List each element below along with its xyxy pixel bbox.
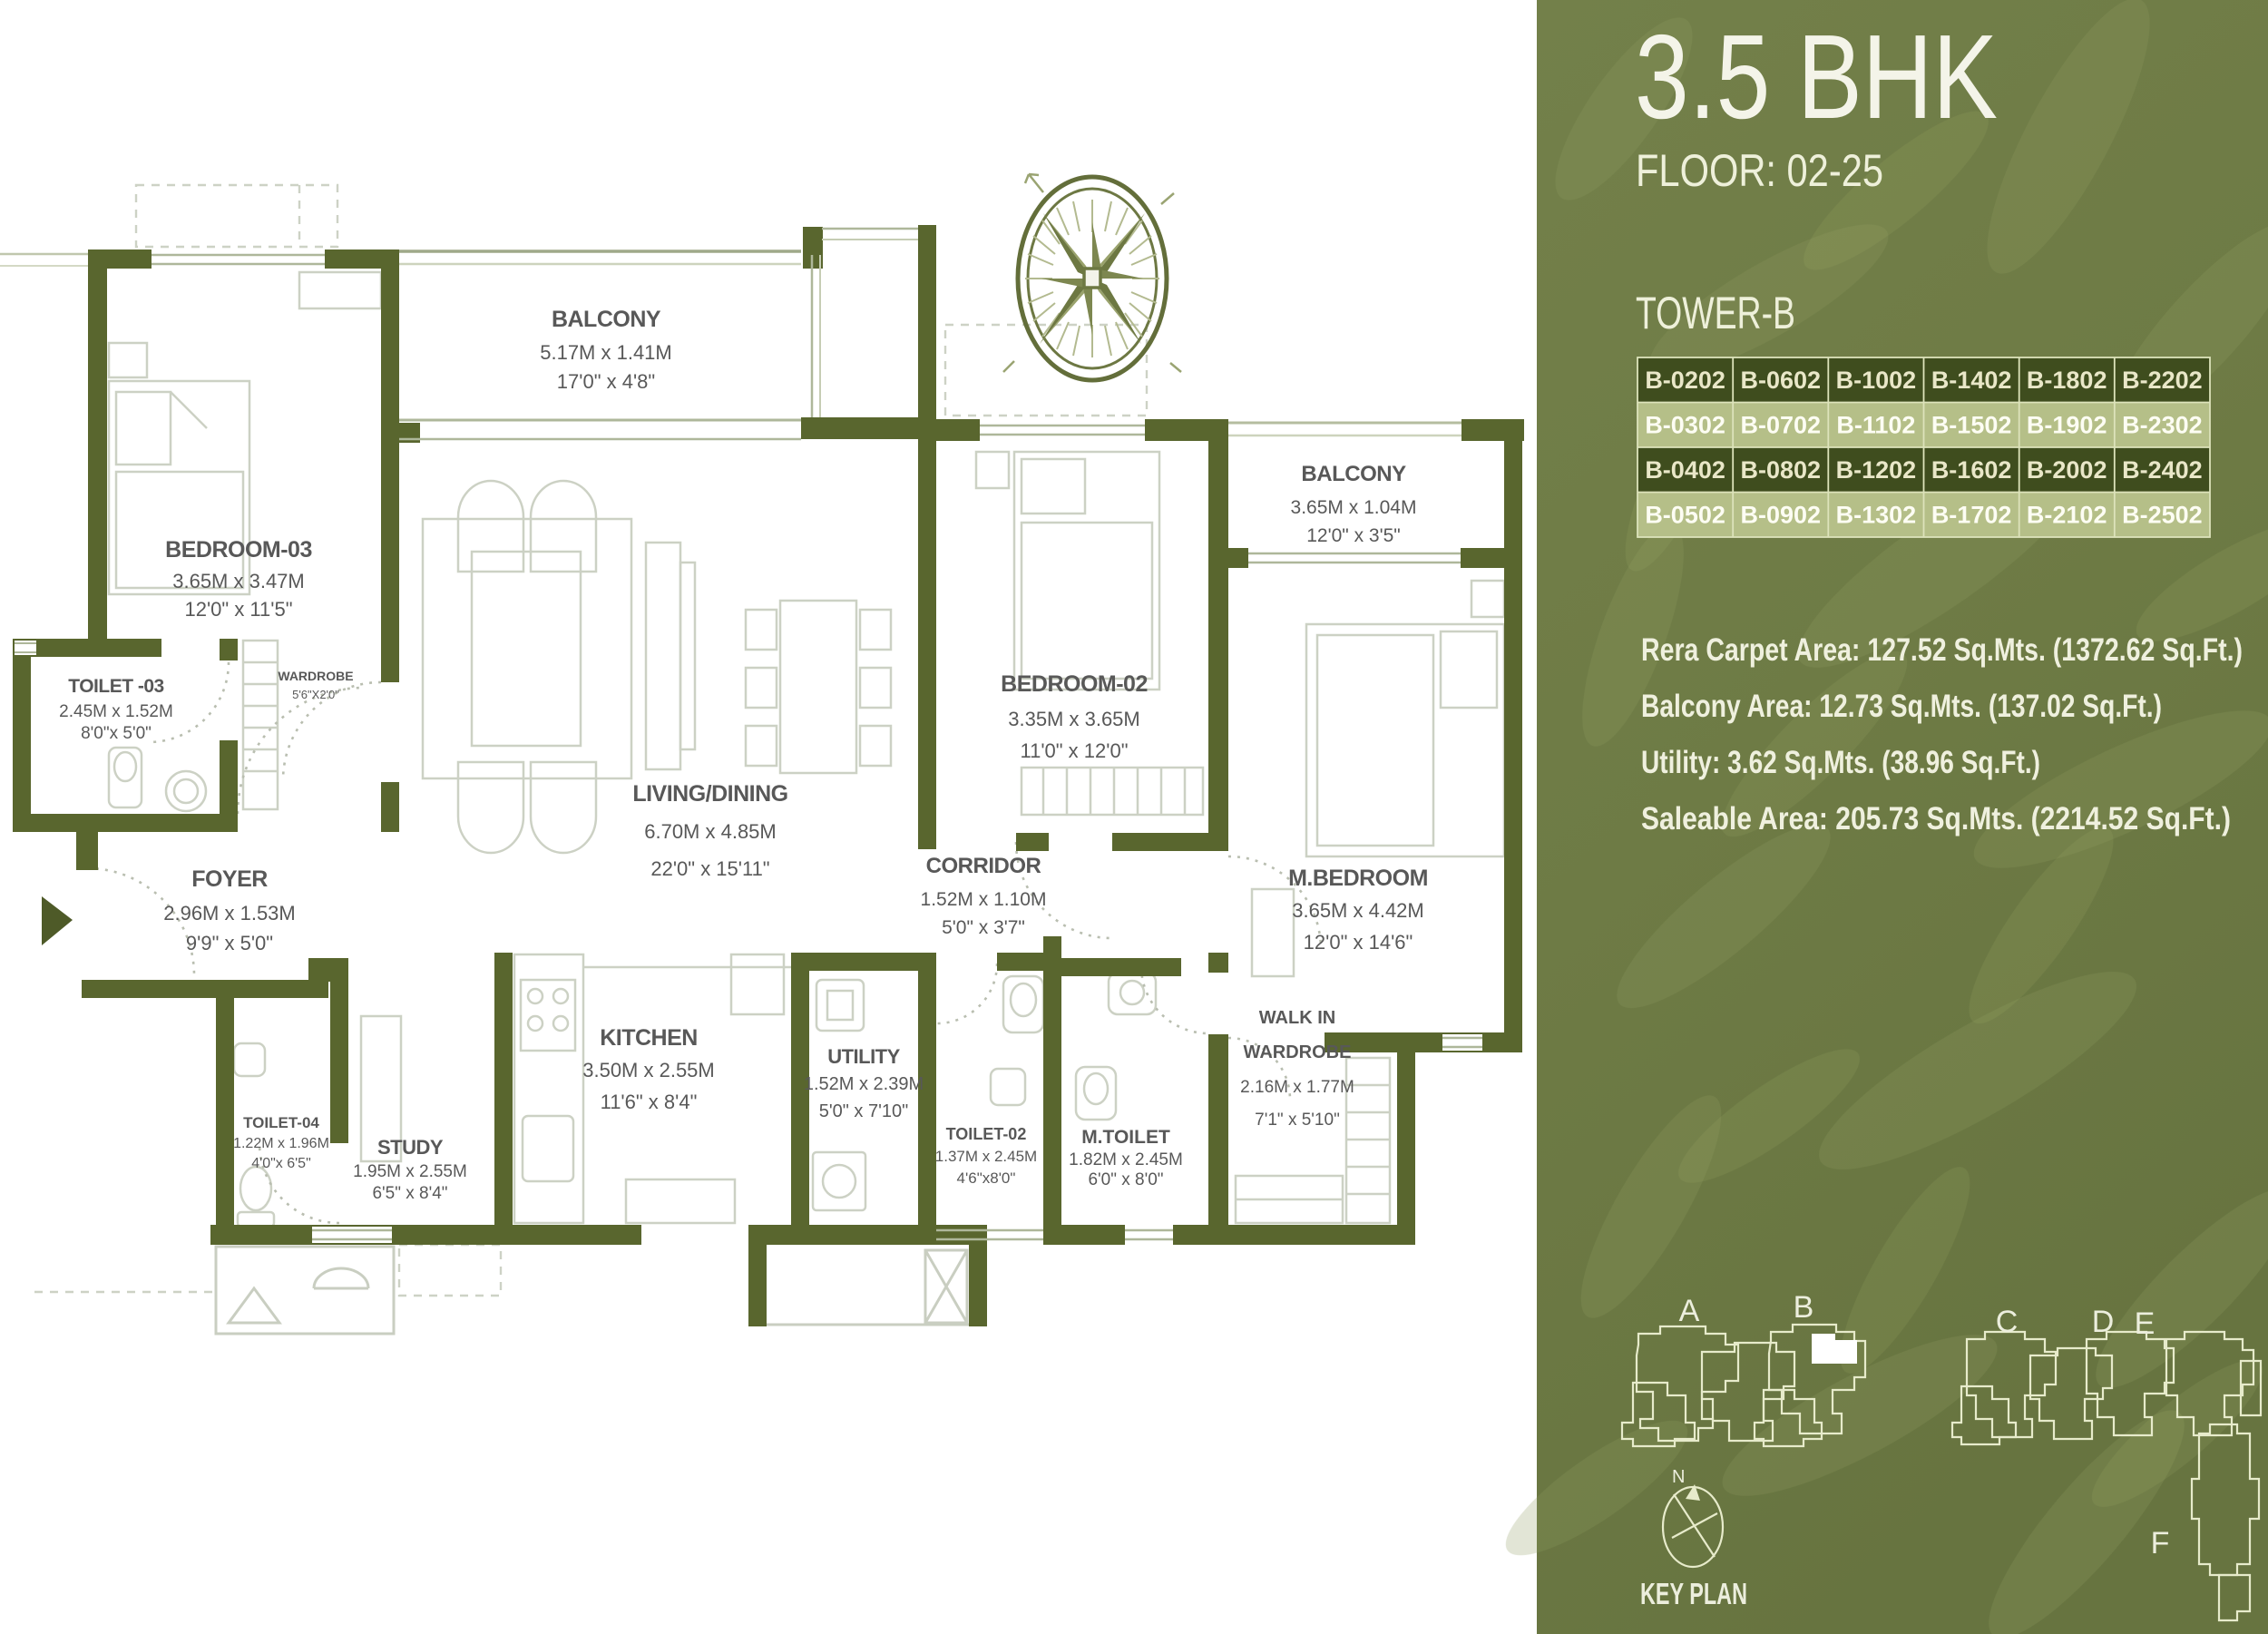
svg-text:4'6"x8'0": 4'6"x8'0" <box>957 1169 1016 1187</box>
svg-text:B-1102: B-1102 <box>1836 412 1915 439</box>
svg-text:2.96M x 1.53M: 2.96M x 1.53M <box>163 902 296 925</box>
svg-text:TOILET -03: TOILET -03 <box>68 676 163 697</box>
svg-text:B-0902: B-0902 <box>1741 502 1822 529</box>
svg-text:TOILET-02: TOILET-02 <box>946 1125 1027 1143</box>
svg-text:5'0" x 3'7": 5'0" x 3'7" <box>942 917 1025 938</box>
svg-text:6'0" x 8'0": 6'0" x 8'0" <box>1088 1170 1163 1189</box>
svg-text:M.BEDROOM: M.BEDROOM <box>1288 866 1428 891</box>
svg-text:B-1402: B-1402 <box>1931 367 2012 394</box>
svg-text:1.52M x 1.10M: 1.52M x 1.10M <box>921 889 1047 910</box>
svg-text:B-2102: B-2102 <box>2027 502 2107 529</box>
svg-text:12'0" x 11'5": 12'0" x 11'5" <box>184 598 292 621</box>
svg-text:N: N <box>1672 1467 1685 1487</box>
svg-text:B-0802: B-0802 <box>1741 456 1822 484</box>
svg-text:3.35M x 3.65M: 3.35M x 3.65M <box>1008 708 1140 730</box>
svg-text:12'0" x 14'6": 12'0" x 14'6" <box>1304 931 1413 954</box>
svg-text:3.65M x 1.04M: 3.65M x 1.04M <box>1291 497 1417 518</box>
svg-text:B-2402: B-2402 <box>2122 456 2203 484</box>
svg-text:4'0"x 6'5": 4'0"x 6'5" <box>251 1156 311 1171</box>
svg-text:1.22M x 1.96M: 1.22M x 1.96M <box>233 1136 329 1151</box>
svg-text:B-1002: B-1002 <box>1836 367 1917 394</box>
svg-text:B-0702: B-0702 <box>1741 412 1822 439</box>
svg-text:3.5 BHK: 3.5 BHK <box>1635 10 1998 143</box>
svg-text:FLOOR: 02-25: FLOOR: 02-25 <box>1636 145 1883 196</box>
svg-text:M.TOILET: M.TOILET <box>1081 1127 1170 1148</box>
svg-text:WARDROBE: WARDROBE <box>278 669 353 683</box>
svg-text:CORRIDOR: CORRIDOR <box>926 854 1041 878</box>
svg-text:5'0" x 7'10": 5'0" x 7'10" <box>819 1101 909 1121</box>
svg-text:B-1802: B-1802 <box>2027 367 2107 394</box>
svg-text:B-1702: B-1702 <box>1931 502 2012 529</box>
svg-text:6.70M x 4.85M: 6.70M x 4.85M <box>644 820 777 843</box>
svg-text:F: F <box>2151 1526 2170 1561</box>
svg-text:1.95M x 2.55M: 1.95M x 2.55M <box>353 1162 467 1181</box>
svg-text:8'0"x 5'0": 8'0"x 5'0" <box>81 724 152 743</box>
svg-text:BEDROOM-02: BEDROOM-02 <box>1001 671 1148 697</box>
svg-text:22'0" x 15'11": 22'0" x 15'11" <box>650 857 769 880</box>
svg-text:B-1302: B-1302 <box>1836 502 1917 529</box>
svg-text:2.45M x 1.52M: 2.45M x 1.52M <box>59 702 173 721</box>
svg-text:FOYER: FOYER <box>191 866 268 892</box>
svg-text:Utility: 3.62 Sq.Mts. (38.96 S: Utility: 3.62 Sq.Mts. (38.96 Sq.Ft.) <box>1641 745 2040 780</box>
svg-text:E: E <box>2135 1306 2156 1341</box>
svg-text:5'6"X2'0": 5'6"X2'0" <box>292 688 339 701</box>
svg-text:B-0502: B-0502 <box>1645 502 1725 529</box>
svg-text:TOILET-04: TOILET-04 <box>243 1114 319 1131</box>
svg-text:BEDROOM-03: BEDROOM-03 <box>165 537 312 563</box>
svg-text:UTILITY: UTILITY <box>827 1045 900 1068</box>
svg-text:WARDROBE: WARDROBE <box>1244 1042 1352 1062</box>
svg-text:7'1" x 5'10": 7'1" x 5'10" <box>1255 1111 1340 1130</box>
svg-text:1.52M x 2.39M: 1.52M x 2.39M <box>804 1074 924 1094</box>
svg-text:9'9" x 5'0": 9'9" x 5'0" <box>186 932 273 954</box>
svg-text:B-2502: B-2502 <box>2122 502 2203 529</box>
svg-text:C: C <box>1996 1305 2019 1339</box>
svg-text:Balcony Area: 12.73 Sq.Mts. (1: Balcony Area: 12.73 Sq.Mts. (137.02 Sq.F… <box>1641 689 2162 724</box>
svg-text:1.82M x 2.45M: 1.82M x 2.45M <box>1069 1150 1183 1169</box>
svg-text:BALCONY: BALCONY <box>1301 462 1406 486</box>
svg-text:D: D <box>2092 1305 2115 1339</box>
svg-text:5.17M x 1.41M: 5.17M x 1.41M <box>540 341 672 364</box>
svg-text:B-2202: B-2202 <box>2122 367 2203 394</box>
svg-text:12'0" x 3'5": 12'0" x 3'5" <box>1306 525 1401 546</box>
svg-text:WALK IN: WALK IN <box>1259 1008 1335 1028</box>
svg-text:LIVING/DINING: LIVING/DINING <box>632 781 787 807</box>
svg-text:3.65M x 3.47M: 3.65M x 3.47M <box>172 570 305 592</box>
svg-text:1.37M x 2.45M: 1.37M x 2.45M <box>935 1148 1037 1165</box>
svg-text:B-1602: B-1602 <box>1931 456 2012 484</box>
svg-text:2.16M x 1.77M: 2.16M x 1.77M <box>1240 1078 1354 1097</box>
svg-text:11'6" x 8'4": 11'6" x 8'4" <box>601 1091 698 1113</box>
svg-text:KITCHEN: KITCHEN <box>600 1025 698 1051</box>
svg-text:B: B <box>1794 1290 1814 1325</box>
svg-text:B-1202: B-1202 <box>1836 456 1917 484</box>
svg-text:11'0" x 12'0": 11'0" x 12'0" <box>1020 739 1128 762</box>
svg-text:B-0202: B-0202 <box>1645 367 1725 394</box>
svg-text:B-2002: B-2002 <box>2027 456 2107 484</box>
svg-text:KEY PLAN: KEY PLAN <box>1640 1577 1747 1610</box>
svg-text:B-1502: B-1502 <box>1931 412 2012 439</box>
svg-text:B-1902: B-1902 <box>2027 412 2107 439</box>
svg-text:B-0402: B-0402 <box>1645 456 1725 484</box>
svg-text:B-2302: B-2302 <box>2122 412 2203 439</box>
svg-text:6'5" x 8'4": 6'5" x 8'4" <box>372 1184 447 1203</box>
svg-text:Saleable Area: 205.73 Sq.Mts.: Saleable Area: 205.73 Sq.Mts. (2214.52 S… <box>1641 801 2231 837</box>
svg-text:Rera Carpet Area: 127.52 Sq.Mt: Rera Carpet Area: 127.52 Sq.Mts. (1372.6… <box>1641 632 2243 668</box>
svg-text:B-0302: B-0302 <box>1645 412 1725 439</box>
svg-text:17'0" x 4'8": 17'0" x 4'8" <box>557 370 655 393</box>
svg-text:3.65M x 4.42M: 3.65M x 4.42M <box>1292 899 1424 922</box>
svg-text:B-0602: B-0602 <box>1741 367 1822 394</box>
svg-text:TOWER-B: TOWER-B <box>1636 288 1795 338</box>
svg-text:A: A <box>1679 1294 1700 1328</box>
svg-text:BALCONY: BALCONY <box>552 307 661 332</box>
svg-text:STUDY: STUDY <box>377 1136 444 1159</box>
svg-text:3.50M x 2.55M: 3.50M x 2.55M <box>582 1059 715 1081</box>
